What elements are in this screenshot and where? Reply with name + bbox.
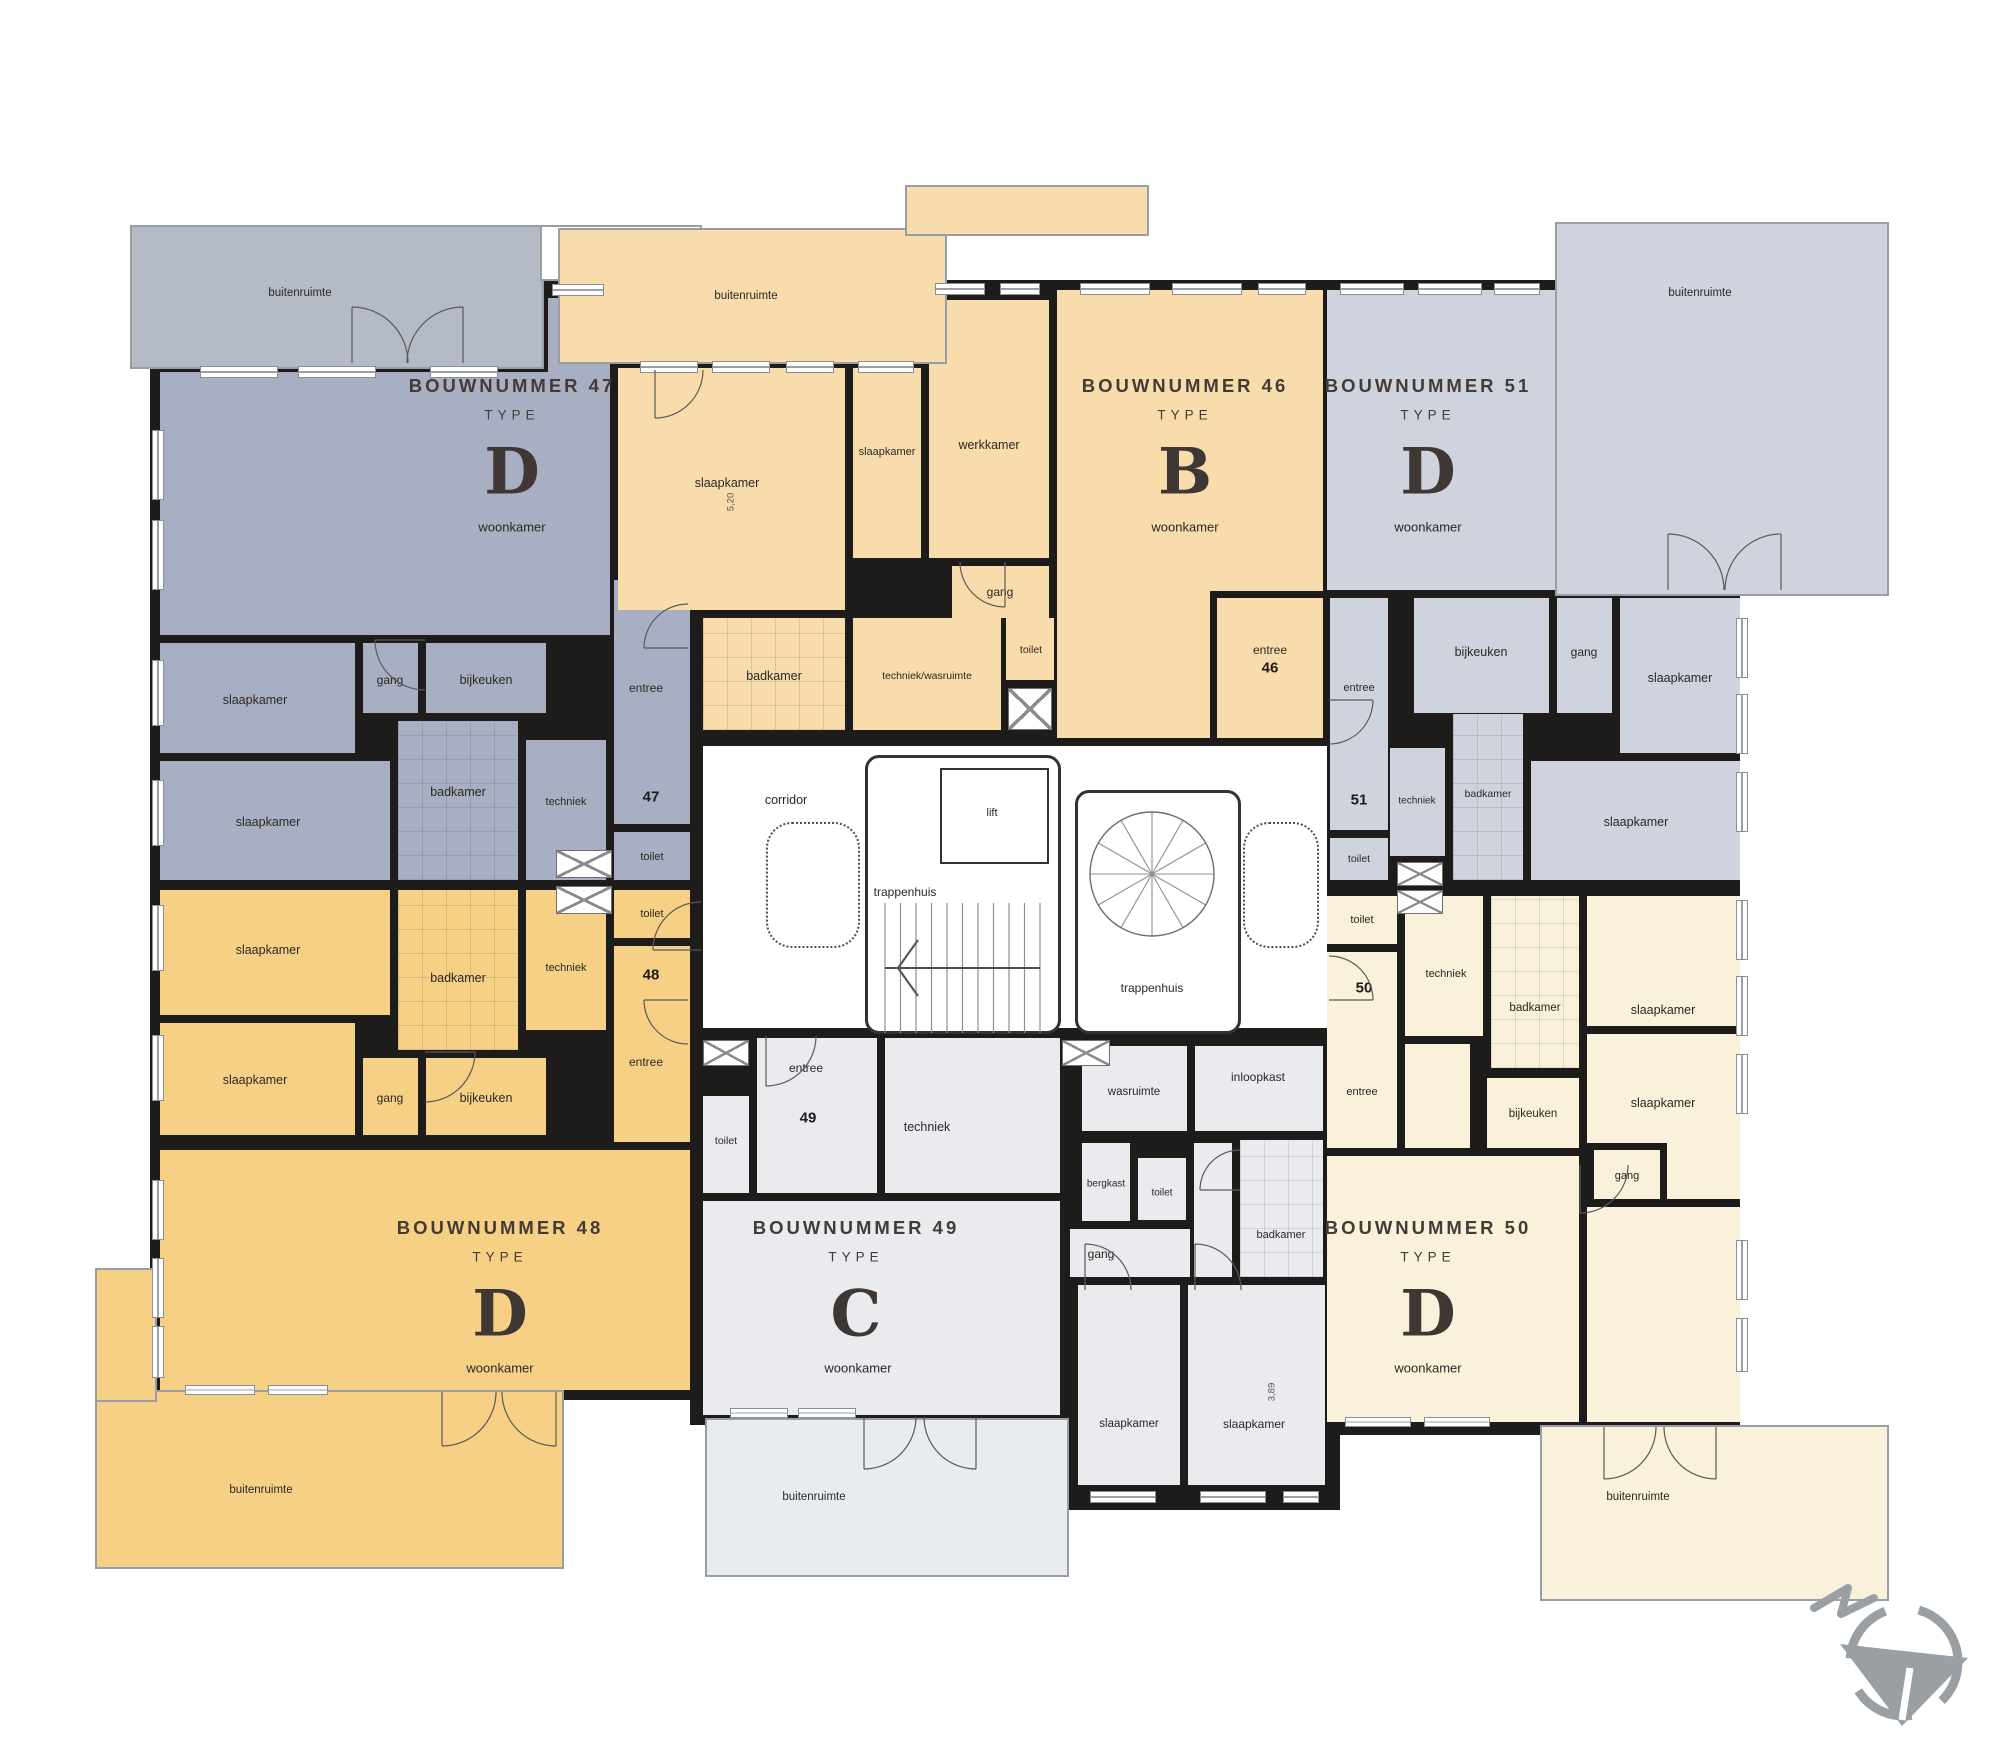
room [1078, 1285, 1180, 1485]
unit-title-bouwnummer: BOUWNUMMER 50 [1325, 1217, 1532, 1239]
room-label: gang [1615, 1170, 1639, 1182]
window [152, 1258, 164, 1318]
window [1345, 1417, 1411, 1427]
window [1090, 1491, 1156, 1503]
room-label: badkamer [746, 669, 802, 683]
window [1736, 1054, 1748, 1114]
window [1172, 283, 1242, 295]
unit-title-type: TYPE [828, 1250, 883, 1265]
room [1491, 896, 1579, 1068]
window [152, 905, 164, 971]
room-label: slaapkamer [236, 815, 301, 829]
room-label: bijkeuken [460, 673, 513, 687]
room-label: slaapkamer [1631, 1096, 1696, 1110]
room [1194, 1143, 1232, 1277]
unit-title-bouwnummer: BOUWNUMMER 48 [397, 1217, 604, 1239]
room-label: badkamer [430, 971, 486, 985]
room-label: toilet [640, 851, 663, 863]
center-label: trappenhuis [874, 885, 937, 899]
room-label: gang [1088, 1247, 1115, 1261]
window [1736, 694, 1748, 754]
window [152, 1180, 164, 1240]
room-label: entree [629, 681, 663, 695]
room [160, 1150, 690, 1390]
room-label: slaapkamer [1604, 815, 1669, 829]
shaft [703, 1040, 749, 1066]
room-label: slaapkamer [1648, 671, 1713, 685]
unit-title-bouwnummer: BOUWNUMMER 46 [1082, 375, 1289, 397]
window [152, 1326, 164, 1378]
room [929, 300, 1049, 558]
room-label: woonkamer [466, 1361, 533, 1376]
window [268, 1385, 328, 1395]
room-label: bijkeuken [1455, 645, 1508, 659]
shaft [1397, 890, 1443, 914]
unit-title-type: TYPE [1400, 1250, 1455, 1265]
shaft [1062, 1040, 1110, 1066]
room-label: wasruimte [1108, 1086, 1160, 1098]
window [152, 430, 164, 500]
corridor-mat [766, 822, 860, 948]
room-label: toilet [715, 1135, 737, 1147]
balcony-label: buitenruimte [1668, 287, 1731, 299]
balcony-label: buitenruimte [1606, 1491, 1669, 1503]
room [398, 890, 518, 1050]
balcony [130, 225, 544, 369]
unit-title-type: TYPE [484, 408, 539, 423]
stairwell-right [1075, 790, 1241, 1034]
shaft [556, 886, 612, 914]
room-label: techniek [904, 1120, 951, 1134]
room-label: entree [629, 1055, 663, 1069]
window [200, 366, 278, 378]
room-label: badkamer [1465, 788, 1512, 800]
window [1258, 283, 1306, 295]
window [640, 361, 698, 373]
room [1587, 1207, 1740, 1422]
door-number: 47 [643, 789, 660, 806]
door-number: 49 [800, 1110, 817, 1127]
window [858, 361, 914, 373]
north-compass-icon [1814, 1588, 1973, 1731]
center-label: lift [987, 807, 998, 819]
room-label: techniek/wasruimte [882, 670, 972, 682]
shaft [1008, 688, 1052, 730]
room-label: inloopkast [1231, 1070, 1285, 1084]
window [152, 520, 164, 590]
room [1188, 1285, 1325, 1485]
room-label: toilet [640, 908, 663, 920]
unit-title-bouwnummer: BOUWNUMMER 51 [1325, 375, 1532, 397]
room-label: slaapkamer [1099, 1418, 1158, 1430]
room [1240, 1140, 1323, 1277]
balcony [705, 1418, 1069, 1577]
window [730, 1408, 788, 1418]
window [712, 361, 770, 373]
floor-plan-canvas: woonkamerslaapkamerslaapkamergangbijkeuk… [0, 0, 2000, 1741]
room-label: toilet [1348, 853, 1370, 865]
room-label: gang [987, 585, 1014, 599]
balcony [95, 1390, 564, 1569]
room-label: badkamer [1509, 1002, 1560, 1014]
window [1000, 283, 1040, 295]
room-label: woonkamer [1151, 520, 1218, 535]
balcony-label: buitenruimte [782, 1491, 845, 1503]
corridor-mat [1243, 822, 1319, 948]
room [1405, 1044, 1470, 1148]
window [1736, 772, 1748, 832]
room [885, 1038, 1060, 1193]
center-label: trappenhuis [1121, 981, 1184, 995]
room-label: gang [1571, 645, 1598, 659]
center-label: corridor [765, 793, 807, 807]
unit-title-type: TYPE [472, 1250, 527, 1265]
unit-title-letter: D [472, 1277, 528, 1352]
door-number: 51 [1351, 792, 1368, 809]
room [853, 368, 921, 558]
unit-title-letter: D [484, 435, 540, 510]
room-label: badkamer [430, 785, 486, 799]
room-label: techniek [1426, 968, 1467, 980]
window [152, 1035, 164, 1101]
balcony [1540, 1425, 1889, 1601]
window [1080, 283, 1150, 295]
window [786, 361, 834, 373]
unit-title-letter: C [831, 1277, 882, 1352]
room [1195, 1046, 1323, 1131]
balcony [95, 1268, 157, 1402]
window [152, 780, 164, 846]
room-label: gang [377, 1091, 404, 1105]
room-label: bijkeuken [1509, 1108, 1558, 1120]
shaft [1397, 862, 1443, 886]
balcony-label: buitenruimte [229, 1484, 292, 1496]
room-label: techniek [1398, 796, 1435, 807]
window [1283, 1491, 1319, 1503]
room-label: techniek [546, 962, 587, 974]
room-label: entree [1253, 643, 1287, 657]
unit-title-letter: D [1400, 1277, 1456, 1352]
window [1736, 1240, 1748, 1300]
room-label: slaapkamer [236, 943, 301, 957]
window [1340, 283, 1404, 295]
window [552, 284, 604, 296]
room [398, 721, 518, 880]
window [1736, 618, 1748, 678]
window [152, 660, 164, 726]
room-label: woonkamer [478, 520, 545, 535]
room-label: slaapkamer [223, 1073, 288, 1087]
window [1736, 900, 1748, 960]
window [1494, 283, 1540, 295]
balcony-label: buitenruimte [714, 290, 777, 302]
room-label: woonkamer [824, 1361, 891, 1376]
window [1736, 976, 1748, 1036]
room-label: entree [789, 1061, 823, 1075]
room-label: toilet [1151, 1188, 1172, 1199]
window [1418, 283, 1482, 295]
unit-title-bouwnummer: BOUWNUMMER 49 [753, 1217, 960, 1239]
room-label: werkkamer [958, 438, 1019, 452]
unit-title-type: TYPE [1400, 408, 1455, 423]
room-label: slaapkamer [1223, 1417, 1285, 1431]
room-label: techniek [546, 796, 587, 808]
room-label: bergkast [1087, 1179, 1125, 1190]
door-number: 48 [643, 967, 660, 984]
room-label: gang [377, 673, 404, 687]
room [614, 580, 690, 824]
balcony [905, 185, 1149, 236]
window [185, 1385, 255, 1395]
room-label: badkamer [1257, 1229, 1306, 1241]
room-label: entree [1346, 1086, 1377, 1098]
balcony-label: buitenruimte [268, 287, 331, 299]
unit-title-type: TYPE [1157, 408, 1212, 423]
room [160, 372, 610, 635]
room-label: woonkamer [1394, 1361, 1461, 1376]
room-label: slaapkamer [695, 476, 760, 490]
window [935, 283, 985, 295]
room-label: entree [1343, 682, 1374, 694]
room-label: slaapkamer [859, 446, 916, 458]
window [1424, 1417, 1490, 1427]
balcony [1555, 222, 1889, 596]
dimension-label: 5,20 [726, 493, 737, 512]
window [798, 1408, 856, 1418]
room-label: slaapkamer [223, 693, 288, 707]
room [1405, 896, 1483, 1036]
door-number: 46 [1262, 660, 1279, 677]
window [1200, 1491, 1266, 1503]
room-label: woonkamer [1394, 520, 1461, 535]
unit-title-letter: D [1400, 435, 1456, 510]
room-label: toilet [1020, 644, 1042, 656]
room-label: bijkeuken [460, 1091, 513, 1105]
unit-title-letter: B [1158, 435, 1212, 510]
window [298, 366, 376, 378]
dimension-label: 3,89 [1267, 1383, 1278, 1402]
window [1736, 1318, 1748, 1372]
shaft [556, 850, 612, 878]
door-number: 50 [1356, 980, 1373, 997]
unit-title-bouwnummer: BOUWNUMMER 47 [409, 375, 616, 397]
room-label: toilet [1350, 914, 1373, 926]
room-label: slaapkamer [1631, 1003, 1696, 1017]
